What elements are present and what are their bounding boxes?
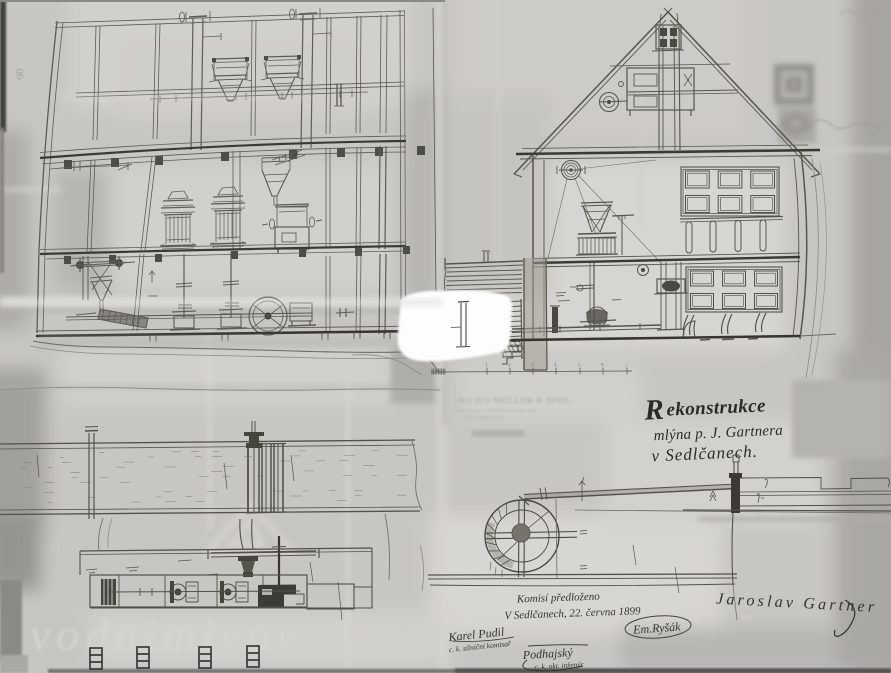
svg-text:Podhajský: Podhajský bbox=[521, 645, 573, 662]
svg-text:ekonstrukce: ekonstrukce bbox=[666, 395, 766, 420]
svg-text:pivní sklady a výčep lihovin s: pivní sklady a výčep lihovin stav. mat. bbox=[453, 408, 538, 414]
svg-text:R: R bbox=[643, 394, 665, 427]
svg-text:JULIUS MÜLLER & SPOL.: JULIUS MÜLLER & SPOL. bbox=[457, 395, 573, 405]
svg-text:České Budějovice.: České Budějovice. bbox=[463, 413, 505, 421]
svg-text:vodnimlyny: vodnimlyny bbox=[30, 609, 302, 660]
